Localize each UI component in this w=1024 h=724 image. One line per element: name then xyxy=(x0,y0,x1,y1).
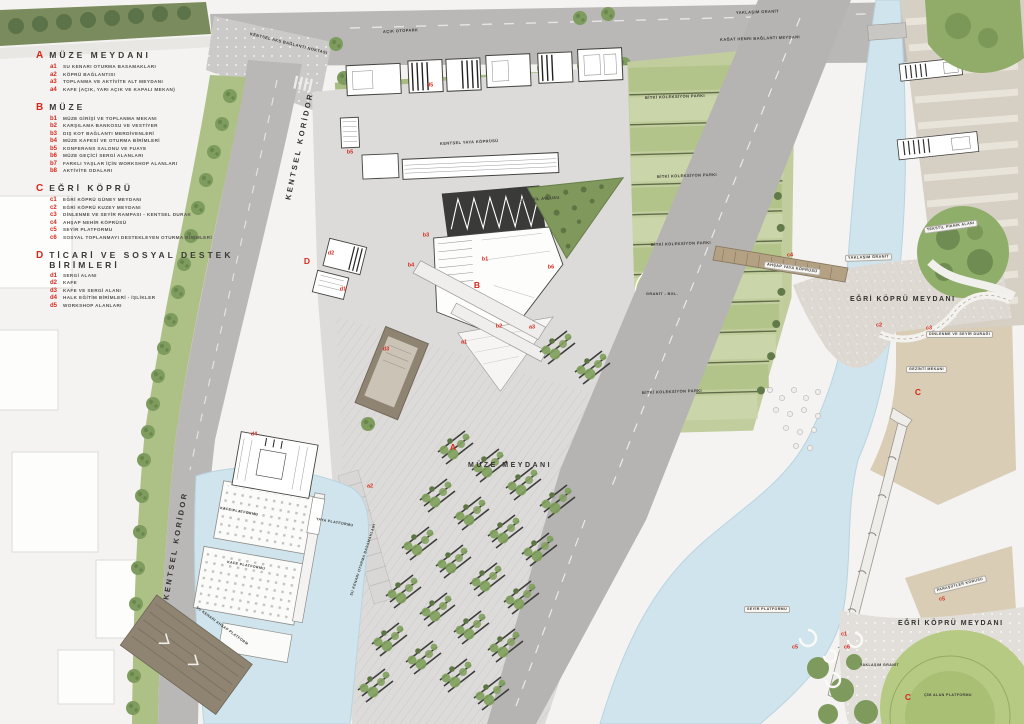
legend-item-a1: a1SU KENARI OTURMA BASAMAKLARI xyxy=(50,64,250,70)
legend-section-title: MÜZE xyxy=(49,102,85,112)
legend-item-label: KAFE VE SERGİ ALANI xyxy=(63,288,121,293)
legend-item-code: b5 xyxy=(50,146,59,152)
legend-item-label: MÜZE KAFESİ VE OTURMA BİRİMLERİ xyxy=(63,138,160,143)
legend-section-header: BMÜZE xyxy=(36,102,250,113)
legend-item-label: EĞRİ KÖPRÜ KUZEY MEYDANI xyxy=(63,205,141,210)
legend-item-code: c4 xyxy=(50,220,59,226)
legend-item-label: KÖPRÜ BAĞLANTISI xyxy=(63,72,115,77)
legend-item-label: SERGİ ALANI xyxy=(63,273,97,278)
legend-item-b2: b2KARŞILAMA BANKOSU VE VESTİYER xyxy=(50,123,250,129)
legend-item-code: b4 xyxy=(50,138,59,144)
legend-section-header: DTİCARİ VE SOSYAL DESTEK BİRİMLERİ xyxy=(36,250,250,270)
legend-item-d2: d2KAFE xyxy=(50,280,250,286)
masterplan-board: KENTSEL AKS BAĞLANTI NOKTASIAÇIK OTOPARK… xyxy=(0,0,1024,724)
legend-item-d4: d4HALK EĞİTİM BİRİMLERİ - İŞLİKLER xyxy=(50,295,250,301)
legend-item-label: SU KENARI OTURMA BASAMAKLARI xyxy=(63,64,156,69)
legend-item-d1: d1SERGİ ALANI xyxy=(50,273,250,279)
legend-item-d5: d5WORKSHOP ALANLARI xyxy=(50,303,250,309)
legend-section-title: MÜZE MEYDANI xyxy=(49,50,151,60)
legend-item-c2: c2EĞRİ KÖPRÜ KUZEY MEYDANI xyxy=(50,205,250,211)
legend-item-c5: c5SEYİR PLATFORMU xyxy=(50,227,250,233)
legend-section-header: CEĞRİ KÖPRÜ xyxy=(36,183,250,194)
canal-bridge xyxy=(868,23,907,41)
legend-item-label: KAFE xyxy=(63,280,77,285)
legend-item-code: b2 xyxy=(50,123,59,129)
legend-item-b1: b1MÜZE GİRİŞİ VE TOPLANMA MEKANI xyxy=(50,116,250,122)
legend-item-d3: d3KAFE VE SERGİ ALANI xyxy=(50,288,250,294)
legend-item-label: FARKLI YAŞLAR İÇİN WORKSHOP ALANLARI xyxy=(63,161,177,166)
legend-item-b5: b5KONFERANS SALONU VE FUAYE xyxy=(50,146,250,152)
legend-item-code: c5 xyxy=(50,227,59,233)
legend-section-letter: A xyxy=(36,50,43,61)
legend-item-label: AHŞAP NEHİR KÖPRÜSÜ xyxy=(63,220,126,225)
legend-item-c4: c4AHŞAP NEHİR KÖPRÜSÜ xyxy=(50,220,250,226)
legend-item-code: a2 xyxy=(50,72,59,78)
legend-section-letter: C xyxy=(36,183,43,194)
legend-item-code: a1 xyxy=(50,64,59,70)
legend-item-c1: c1EĞRİ KÖPRÜ GÜNEY MEYDANI xyxy=(50,197,250,203)
legend-item-c6: c6SOSYAL TOPLANMAYI DESTEKLEYEN OTURMA B… xyxy=(50,235,250,241)
legend-item-code: c3 xyxy=(50,212,59,218)
legend-section-title: TİCARİ VE SOSYAL DESTEK BİRİMLERİ xyxy=(49,250,250,270)
legend-item-a3: a3TOPLANMA VE AKTİVİTE ALT MEYDANI xyxy=(50,79,250,85)
legend-section-title: EĞRİ KÖPRÜ xyxy=(49,183,133,193)
legend-item-label: MÜZE GİRİŞİ VE TOPLANMA MEKANI xyxy=(63,116,157,121)
legend-item-code: c2 xyxy=(50,205,59,211)
legend-item-label: KARŞILAMA BANKOSU VE VESTİYER xyxy=(63,123,158,128)
legend-item-label: EĞRİ KÖPRÜ GÜNEY MEYDANI xyxy=(63,197,142,202)
legend-item-code: b1 xyxy=(50,116,59,122)
legend-item-a4: a4KAFE (AÇIK, YARI AÇIK VE KAPALI MEKAN) xyxy=(50,87,250,93)
legend-item-label: SOSYAL TOPLANMAYI DESTEKLEYEN OTURMA BİR… xyxy=(63,235,212,240)
legend-item-code: d5 xyxy=(50,303,59,309)
legend-item-code: b3 xyxy=(50,131,59,137)
legend-item-label: HALK EĞİTİM BİRİMLERİ - İŞLİKLER xyxy=(63,295,155,300)
legend-item-b6: b6MÜZE GEÇİCİ SERGİ ALANLARI xyxy=(50,153,250,159)
legend-item-b8: b8AKTİVİTE ODALARI xyxy=(50,168,250,174)
legend-item-label: WORKSHOP ALANLARI xyxy=(63,303,122,308)
legend-item-c3: c3DİNLENME VE SEYİR RAMPASI - KENTSEL DU… xyxy=(50,212,250,218)
legend-item-code: a3 xyxy=(50,79,59,85)
legend-item-label: DIŞ KOT BAĞLANTI MERDİVENLERİ xyxy=(63,131,154,136)
legend-section-c: CEĞRİ KÖPRÜc1EĞRİ KÖPRÜ GÜNEY MEYDANIc2E… xyxy=(36,183,250,241)
legend-item-b7: b7FARKLI YAŞLAR İÇİN WORKSHOP ALANLARI xyxy=(50,161,250,167)
legend-item-code: d3 xyxy=(50,288,59,294)
legend-section-a: AMÜZE MEYDANIa1SU KENARI OTURMA BASAMAKL… xyxy=(36,50,250,93)
legend-item-code: b7 xyxy=(50,161,59,167)
legend-section-d: DTİCARİ VE SOSYAL DESTEK BİRİMLERİd1SERG… xyxy=(36,250,250,309)
legend-item-label: TOPLANMA VE AKTİVİTE ALT MEYDANI xyxy=(63,79,163,84)
legend-item-code: d2 xyxy=(50,280,59,286)
legend-item-code: c6 xyxy=(50,235,59,241)
legend-panel: AMÜZE MEYDANIa1SU KENARI OTURMA BASAMAKL… xyxy=(36,50,250,318)
legend-item-code: c1 xyxy=(50,197,59,203)
legend-item-label: DİNLENME VE SEYİR RAMPASI - KENTSEL DURA… xyxy=(63,212,191,217)
legend-section-header: AMÜZE MEYDANI xyxy=(36,50,250,61)
legend-item-code: b6 xyxy=(50,153,59,159)
legend-item-label: SEYİR PLATFORMU xyxy=(63,227,113,232)
legend-item-b4: b4MÜZE KAFESİ VE OTURMA BİRİMLERİ xyxy=(50,138,250,144)
legend-section-b: BMÜZEb1MÜZE GİRİŞİ VE TOPLANMA MEKANIb2K… xyxy=(36,102,250,175)
legend-item-b3: b3DIŞ KOT BAĞLANTI MERDİVENLERİ xyxy=(50,131,250,137)
legend-item-code: d4 xyxy=(50,295,59,301)
legend-item-code: a4 xyxy=(50,87,59,93)
legend-item-code: b8 xyxy=(50,168,59,174)
legend-item-label: KONFERANS SALONU VE FUAYE xyxy=(63,146,147,151)
legend-item-label: KAFE (AÇIK, YARI AÇIK VE KAPALI MEKAN) xyxy=(63,87,175,92)
legend-section-letter: B xyxy=(36,102,43,113)
legend-item-label: MÜZE GEÇİCİ SERGİ ALANLARI xyxy=(63,153,144,158)
legend-item-a2: a2KÖPRÜ BAĞLANTISI xyxy=(50,72,250,78)
legend-item-label: AKTİVİTE ODALARI xyxy=(63,168,113,173)
legend-section-letter: D xyxy=(36,250,43,261)
legend-item-code: d1 xyxy=(50,273,59,279)
